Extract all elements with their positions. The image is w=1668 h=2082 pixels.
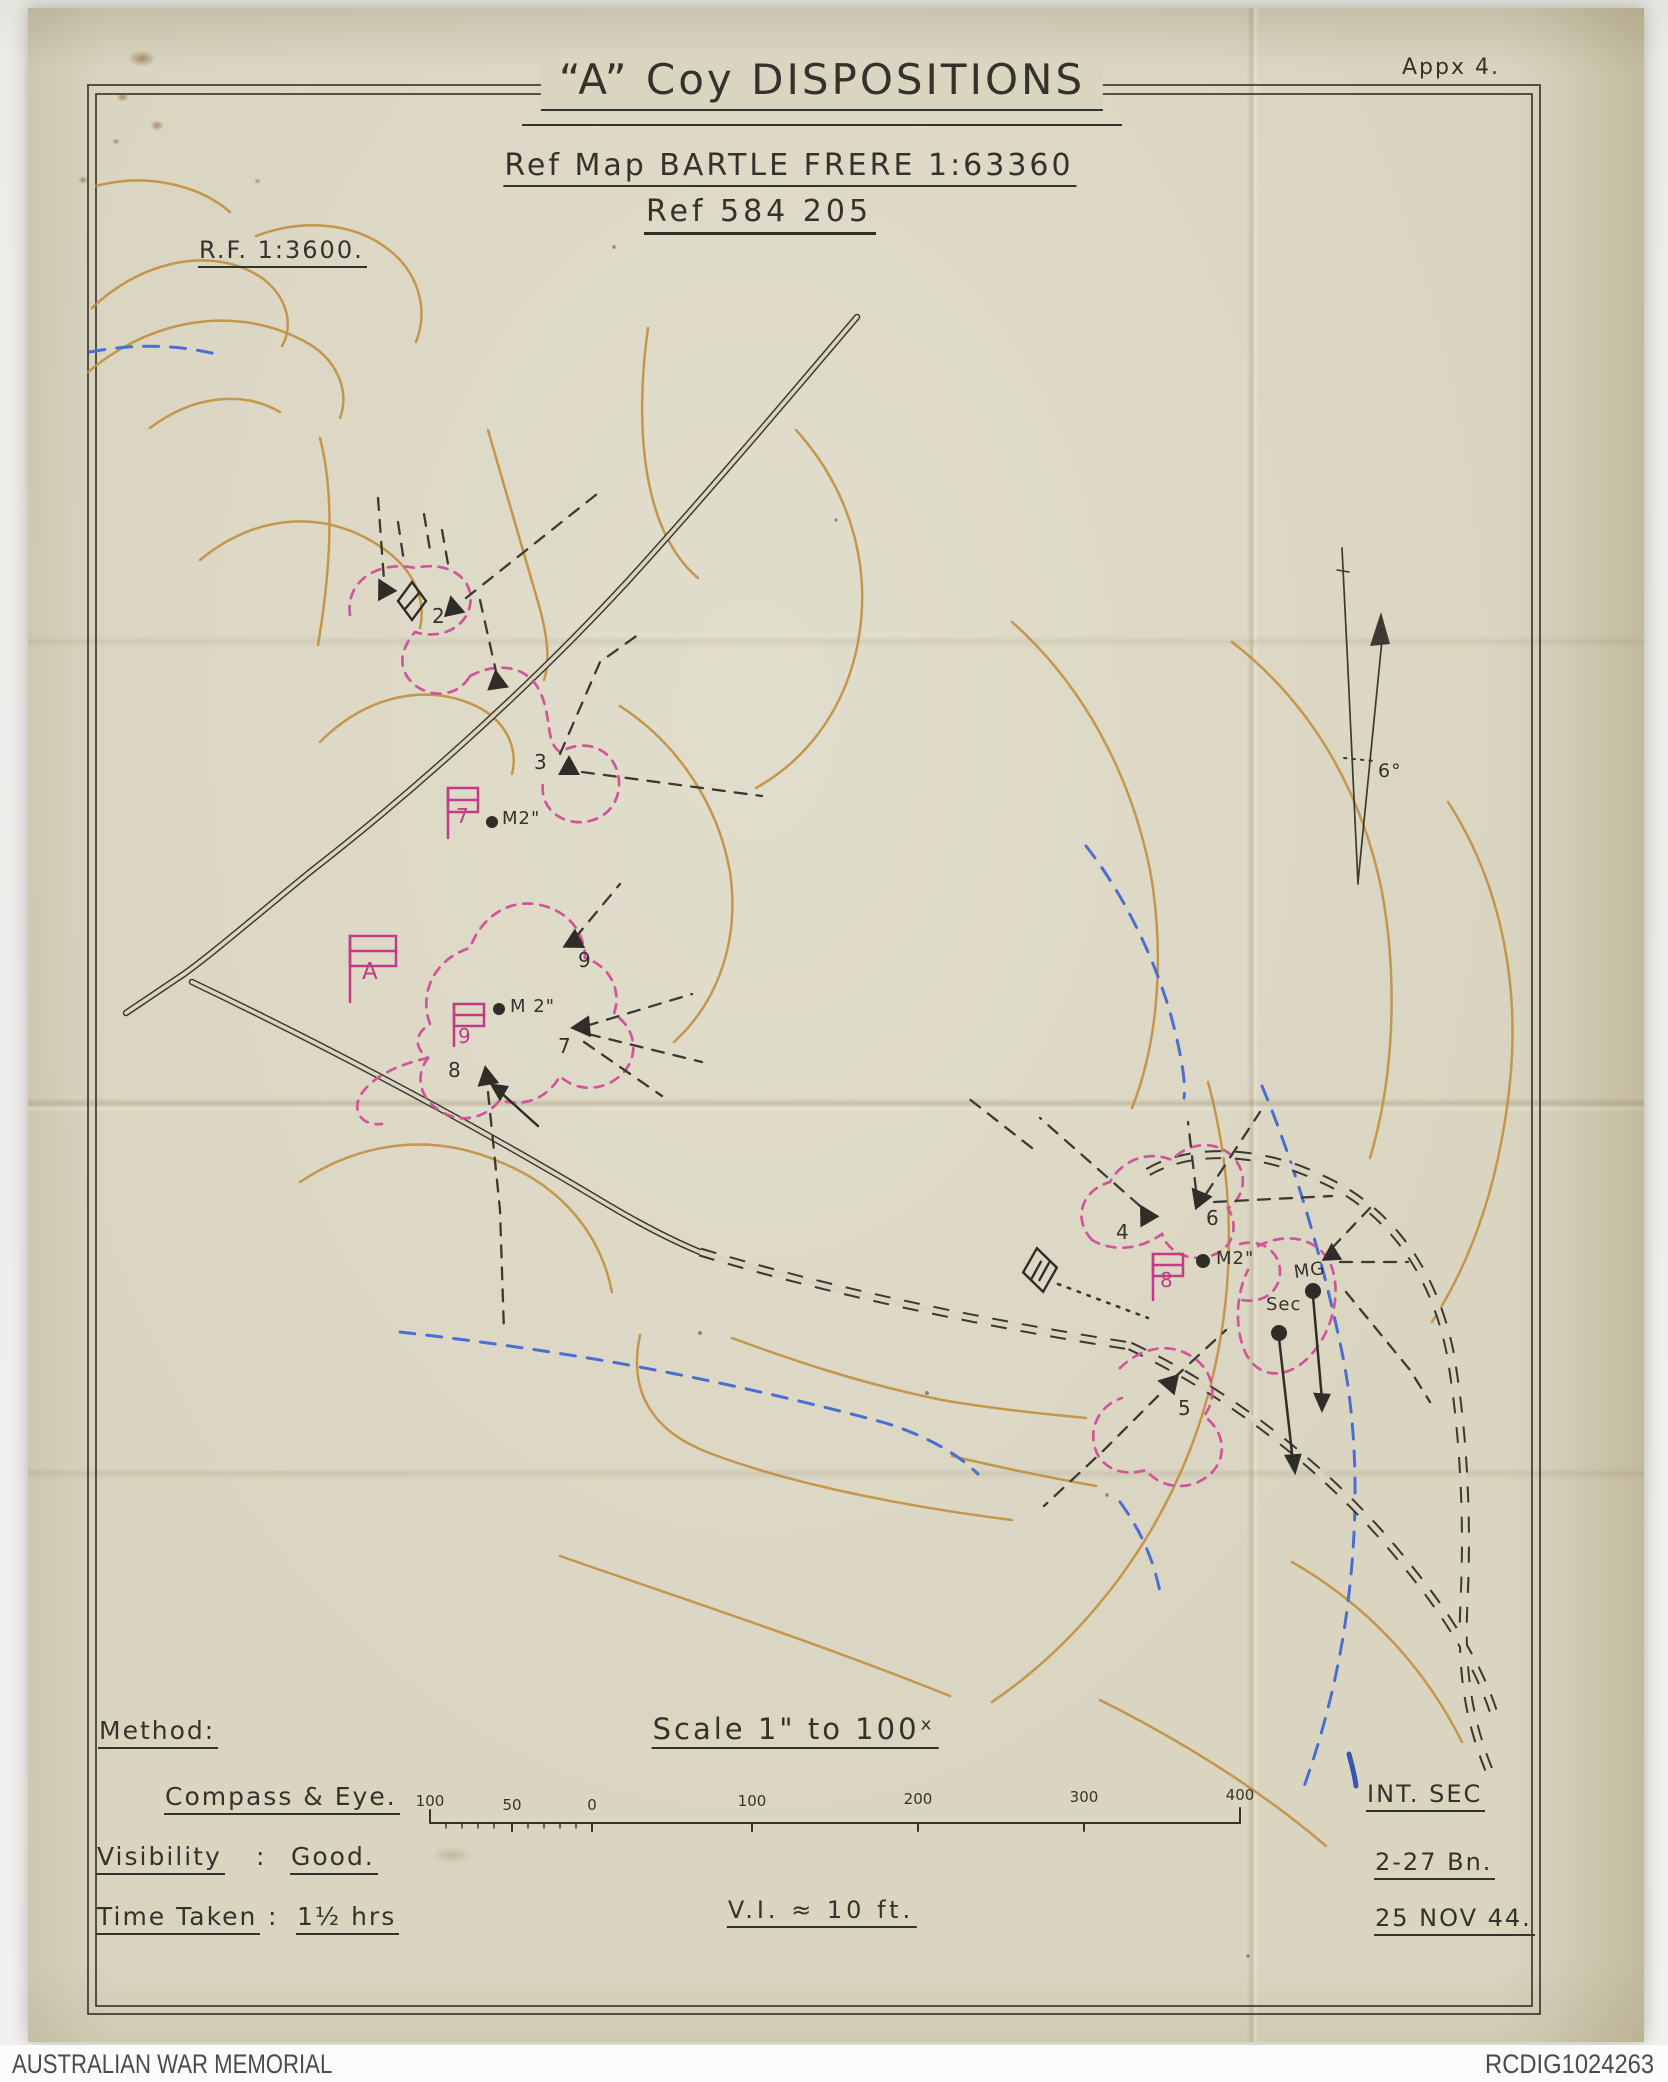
credit-bar: AUSTRALIAN WAR MEMORIAL RCDIG1024263 — [0, 2045, 1668, 2082]
post-triangle-1 — [369, 573, 398, 601]
sec-label: Sec — [1266, 1296, 1301, 1315]
visibility-value: Good. — [290, 1844, 378, 1875]
mortar-dot-3 — [1196, 1254, 1210, 1268]
flag-label-8: 8 — [1160, 1270, 1174, 1291]
contour-lines — [88, 180, 1512, 1846]
mortar-label-1: M2" — [502, 810, 540, 829]
scale-bar-label: 0 — [587, 1796, 597, 1814]
flag-label-7: 7 — [456, 806, 470, 827]
post-triangle-5 — [1155, 1370, 1179, 1396]
scale-bar-label: 50 — [502, 1796, 521, 1814]
platoon-flags — [350, 788, 1183, 1300]
mortar-label-2: M 2" — [510, 998, 555, 1017]
rf-scale-note: R.F. 1:3600. — [198, 238, 367, 268]
north-declination-diagram — [1337, 548, 1390, 884]
post-triangle-3 — [558, 755, 580, 775]
stream-lines — [90, 346, 1355, 1792]
title-second-underline — [522, 124, 1122, 126]
diamond-symbol-2 — [1020, 1246, 1060, 1294]
post-label-5: 5 — [1178, 1398, 1192, 1419]
post-label-7: 7 — [558, 1036, 572, 1057]
blue-ink-mark — [1349, 1754, 1356, 1786]
declination-label: 6° — [1378, 762, 1402, 782]
method-value: Compass & Eye. — [164, 1784, 400, 1815]
map-drawing — [0, 0, 1668, 2082]
north-arrowhead — [1370, 612, 1390, 646]
track-double-dashed — [700, 1155, 1496, 1782]
time-taken-value: 1½ hrs — [296, 1904, 399, 1935]
vertical-interval-note: V.I. ≈ 10 ft. — [727, 1898, 917, 1928]
mortar-label-3: M2" — [1216, 1250, 1254, 1269]
post-triangle-7 — [569, 1015, 591, 1039]
scale-bar-label: 200 — [904, 1790, 933, 1808]
scale-bar-label: 100 — [416, 1792, 445, 1810]
visibility-colon: : — [256, 1844, 265, 1870]
dotted-links — [1058, 1284, 1148, 1318]
flag-label-9: 9 — [458, 1026, 472, 1047]
date-label: 25 NOV 44. — [1374, 1906, 1535, 1936]
post-label-4: 4 — [1116, 1222, 1130, 1243]
flag-label-a: A — [362, 960, 379, 984]
post-label-3: 3 — [534, 752, 548, 773]
scale-bar-label: 400 — [1226, 1786, 1255, 1804]
post-label-9: 9 — [578, 950, 592, 971]
post-label-8: 8 — [448, 1060, 462, 1081]
appendix-label: Appx 4. — [1402, 56, 1500, 79]
scale-bar-label: 300 — [1070, 1788, 1099, 1806]
time-taken-label: Time Taken — [96, 1904, 260, 1935]
ref-point-line: Ref 584 205 — [644, 196, 876, 235]
scale-bar — [430, 1808, 1240, 1831]
page-title: “A” Coy DISPOSITIONS — [541, 56, 1103, 111]
battalion-label: 2-27 Bn. — [1374, 1850, 1495, 1880]
road-double-line — [126, 317, 857, 1252]
post-label-6: 6 — [1206, 1208, 1220, 1229]
ref-map-line: Ref Map BARTLE FRERE 1:63360 — [503, 150, 1076, 187]
perimeter-dashed-pink — [350, 566, 1336, 1486]
credit-institution: AUSTRALIAN WAR MEMORIAL — [12, 2049, 332, 2080]
int-sec-label: INT. SEC — [1366, 1782, 1485, 1812]
credit-record-id: RCDIG1024263 — [1485, 2049, 1654, 2080]
post-triangle-mid — [484, 668, 509, 691]
visibility-label: Visibility — [96, 1844, 225, 1875]
paper-specks — [612, 245, 1250, 1958]
post-triangle-8 — [474, 1063, 499, 1087]
scale-title: Scale 1" to 100ˣ — [652, 1714, 939, 1749]
method-label: Method: — [98, 1718, 218, 1749]
mortar-dot-2 — [493, 1003, 505, 1015]
mortar-dot-1 — [486, 816, 498, 828]
post-label-2: 2 — [432, 606, 446, 627]
scanned-map-photo: Appx 4. “A” Coy DISPOSITIONS Ref Map BAR… — [0, 0, 1668, 2082]
post-triangle-4 — [1130, 1199, 1159, 1227]
scale-bar-label: 100 — [738, 1792, 767, 1810]
time-taken-colon: : — [268, 1904, 277, 1930]
